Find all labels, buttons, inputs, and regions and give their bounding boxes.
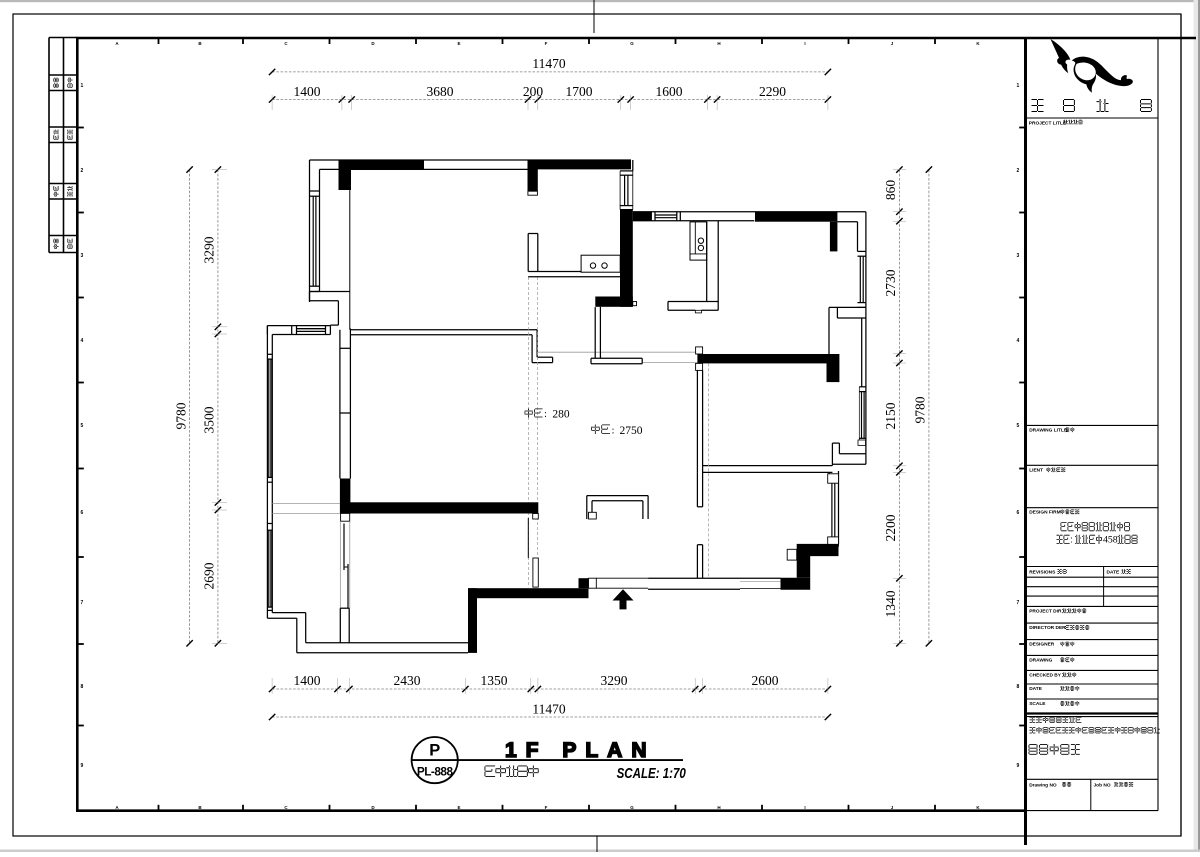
svg-text:PROJECT DIR: PROJECT DIR [1029,609,1062,615]
svg-text:280: 280 [552,409,570,421]
svg-text:8: 8 [81,684,84,690]
svg-text:2290: 2290 [759,84,786,99]
svg-text:DRAWING LITLE: DRAWING LITLE [1029,428,1068,434]
svg-text:SCALE: 1:70: SCALE: 1:70 [617,765,687,782]
svg-text:1400: 1400 [294,84,321,99]
svg-text:DATE: DATE [1029,686,1043,692]
svg-text:H: H [717,41,720,46]
svg-text:2200: 2200 [883,514,898,541]
svg-text::: : [612,426,615,437]
svg-text:F: F [545,41,548,46]
svg-text:9780: 9780 [913,396,928,423]
svg-text:I: I [804,805,805,810]
svg-text:DESIGN FIRM: DESIGN FIRM [1029,510,1060,516]
svg-text:8: 8 [1017,684,1020,690]
svg-text:G: G [630,805,634,810]
svg-text:E: E [457,805,460,810]
svg-text:DATE: DATE [1107,570,1121,576]
svg-text:3500: 3500 [202,406,217,433]
svg-text:3: 3 [1017,253,1020,259]
svg-text:860: 860 [883,180,898,201]
svg-text:2730: 2730 [883,269,898,296]
svg-text:7: 7 [1017,600,1020,606]
svg-text:3680: 3680 [427,84,454,99]
svg-text:1350: 1350 [481,673,508,688]
svg-text:458: 458 [1103,535,1118,546]
svg-text:9: 9 [81,763,84,769]
svg-text:1400: 1400 [294,673,321,688]
svg-text:E: E [457,41,460,46]
svg-text:1F PLAN: 1F PLAN [505,739,656,762]
svg-text:Drawing NO: Drawing NO [1029,782,1057,788]
svg-text:11470: 11470 [532,56,565,71]
svg-text::: : [1070,535,1073,546]
svg-text:5: 5 [1017,423,1020,429]
svg-text:G: G [630,41,634,46]
svg-text:3290: 3290 [202,236,217,263]
svg-text:1340: 1340 [883,590,898,617]
svg-text:4: 4 [81,338,84,344]
svg-text:DRAWING: DRAWING [1029,658,1052,664]
svg-text:1: 1 [81,83,84,89]
svg-text:6: 6 [1017,510,1020,516]
svg-text:P: P [429,742,440,760]
svg-text:H: H [717,805,720,810]
svg-text:LIENT: LIENT [1029,468,1043,474]
svg-text:REVISIONS: REVISIONS [1029,570,1056,576]
svg-text:11470: 11470 [532,702,565,717]
svg-text:PROJECT LITLE: PROJECT LITLE [1029,120,1067,126]
svg-text:2: 2 [1017,168,1020,174]
svg-text::: : [544,409,547,420]
svg-text:9780: 9780 [173,402,188,429]
svg-text:3: 3 [81,253,84,259]
svg-text:1600: 1600 [656,84,683,99]
svg-text:CHECKED BY: CHECKED BY [1029,673,1062,679]
svg-text:3290: 3290 [601,673,628,688]
svg-text:1700: 1700 [566,84,593,99]
svg-text:DIRECTOR DER: DIRECTOR DER [1029,625,1066,631]
svg-text:9: 9 [1017,763,1020,769]
svg-text:1: 1 [1017,83,1020,89]
svg-text:2600: 2600 [752,673,779,688]
svg-text:6: 6 [81,510,84,516]
svg-text:I: I [804,41,805,46]
svg-text:4: 4 [1017,338,1020,344]
svg-text:DESIGNER: DESIGNER [1029,642,1055,648]
svg-text:2690: 2690 [202,562,217,589]
svg-text:5: 5 [81,423,84,429]
svg-text:2: 2 [81,168,84,174]
svg-text:Job NO: Job NO [1094,782,1111,788]
svg-text:PL-888: PL-888 [417,765,454,779]
svg-text:2430: 2430 [394,673,421,688]
svg-text:2750: 2750 [620,425,643,437]
svg-text:SCALE: SCALE [1029,701,1046,707]
svg-text:2150: 2150 [883,402,898,429]
svg-text:F: F [545,805,548,810]
svg-text:7: 7 [81,600,84,606]
svg-text:200: 200 [523,84,544,99]
